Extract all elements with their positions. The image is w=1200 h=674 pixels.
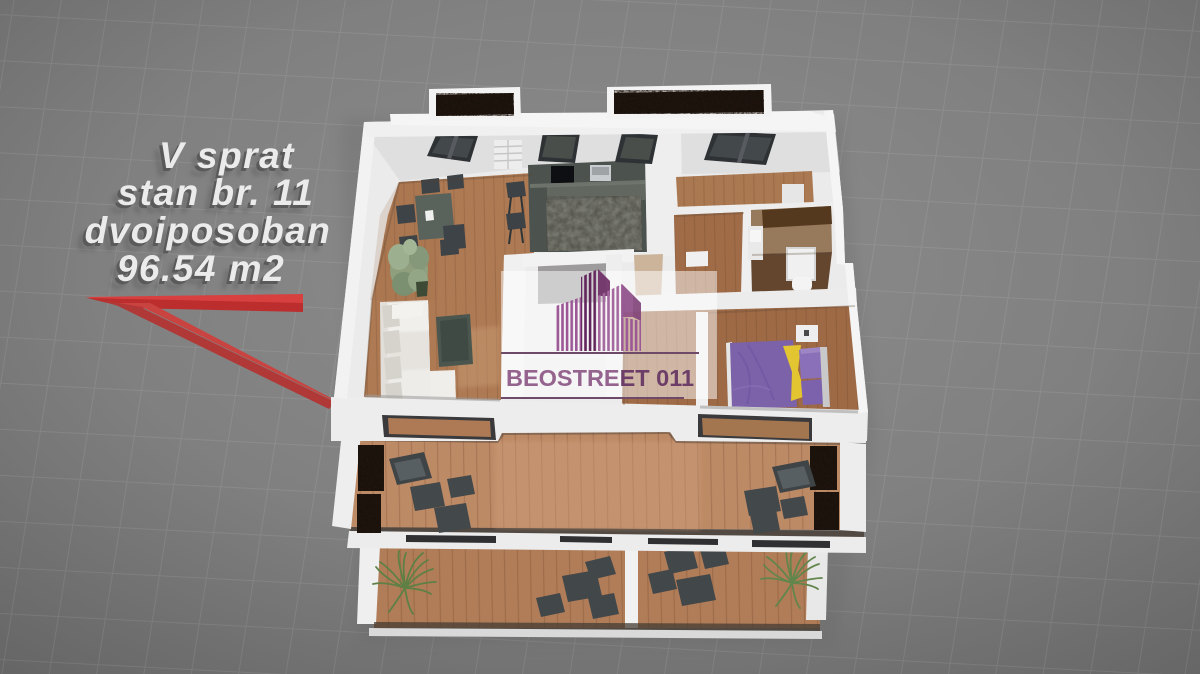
svg-text:V sprat: V sprat (159, 135, 295, 176)
svg-text:BEOSTREET 011: BEOSTREET 011 (506, 365, 694, 391)
svg-text:dvoiposoban: dvoiposoban (85, 210, 332, 251)
svg-text:stan br. 11: stan br. 11 (118, 172, 315, 213)
svg-text:96.54 m2: 96.54 m2 (117, 248, 285, 289)
